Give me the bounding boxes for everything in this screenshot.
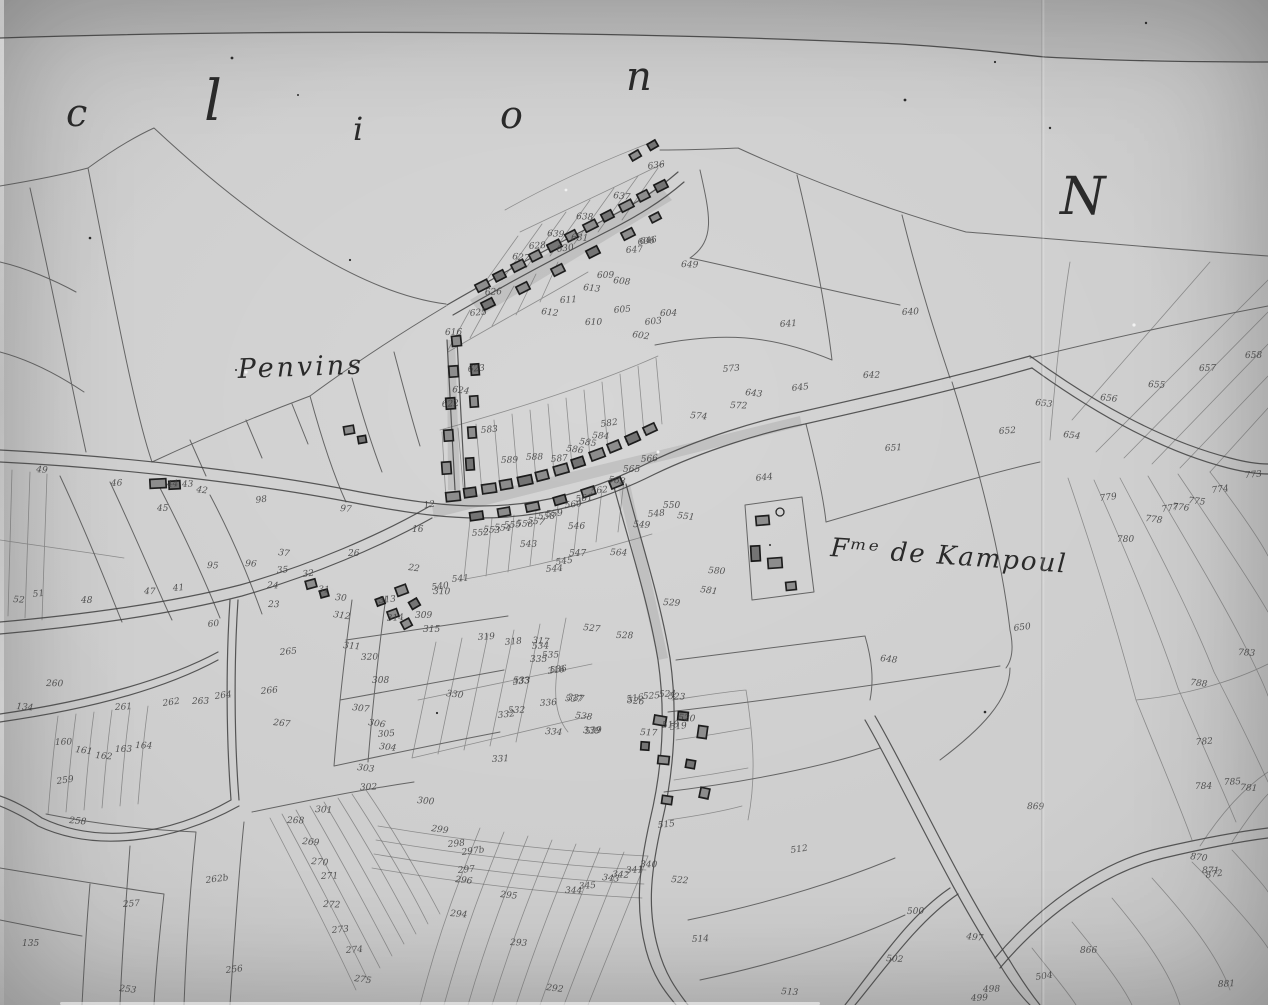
- parcel-number: 657: [1199, 364, 1217, 374]
- parcel-number: 162: [95, 751, 113, 762]
- parcel-number: 517: [640, 728, 658, 739]
- section-letter: c: [66, 91, 87, 135]
- parcel-number: 96: [245, 559, 257, 570]
- parcel-number: 512: [790, 844, 809, 856]
- parcel-number: 314: [387, 613, 405, 624]
- parcel-number: 51: [32, 589, 44, 600]
- parcel-number: 785: [1224, 777, 1242, 788]
- parcel-number: 308: [372, 676, 389, 686]
- parcel-number: 588: [526, 452, 544, 463]
- parcel-number: 582: [600, 418, 619, 430]
- parcel-number: 160: [55, 737, 73, 748]
- parcel-number: 22: [407, 563, 421, 574]
- parcel-number: 560: [564, 499, 582, 511]
- parcel-number: 589: [501, 455, 519, 466]
- parcel-number: 624: [452, 385, 471, 397]
- parcel-number: 628: [529, 241, 547, 252]
- parcel-number: 319: [478, 632, 496, 643]
- parcel-number: 551: [677, 511, 695, 523]
- parcel-number: 305: [378, 729, 396, 740]
- parcel-number: 584: [592, 431, 610, 442]
- parcel-number: 333: [512, 676, 531, 688]
- parcel-number: 550: [663, 501, 680, 511]
- parcel-number: 261: [114, 702, 133, 713]
- parcel-number: 523: [668, 692, 686, 703]
- parcel-number: 616: [445, 328, 463, 338]
- parcel-number: 782: [1195, 737, 1213, 748]
- parcel-number: 497: [965, 932, 984, 944]
- parcel-number: 622: [442, 399, 460, 410]
- parcel-number: 23: [267, 600, 280, 610]
- parcel-number: 266: [259, 686, 278, 698]
- parcel-number: 264: [213, 690, 233, 702]
- parcel-number: 301: [315, 805, 333, 816]
- parcel-number: 307: [352, 703, 371, 715]
- parcel-number: 262b: [204, 873, 229, 886]
- parcel-number: 49: [35, 465, 49, 476]
- parcel-number: 47: [143, 587, 156, 597]
- parcel-number: 499: [970, 993, 989, 1004]
- section-letter: i: [353, 110, 363, 148]
- parcel-number: 306: [368, 718, 387, 730]
- parcel-number: 320: [361, 652, 379, 663]
- parcel-number: 580: [708, 566, 726, 577]
- parcel-number: 639: [547, 229, 565, 240]
- parcel-number: 565: [623, 465, 640, 475]
- parcel-number: 45: [156, 504, 169, 514]
- parcel-number: 304: [379, 742, 397, 754]
- parcel-number: 330: [446, 689, 465, 701]
- parcel-number: 12: [423, 500, 436, 511]
- parcel-number: 652: [999, 426, 1017, 437]
- parcel-number: 653: [1035, 398, 1054, 410]
- parcel-number: 32: [302, 568, 315, 580]
- parcel-number: 642: [863, 371, 881, 381]
- parcel-number: 259: [55, 775, 75, 787]
- parcel-number: 97: [340, 504, 353, 515]
- parcel-number: 623: [467, 364, 485, 375]
- top-margin-shade: [0, 0, 1268, 62]
- parcel-number: 268: [286, 816, 305, 826]
- parcel-number: 656: [1100, 393, 1118, 405]
- cadastral-map-photo: clionN PenvinsFᵐᵉ de Kampoul 63663763863…: [0, 0, 1268, 1005]
- parcel-number: 260: [45, 679, 64, 689]
- parcel-number: 783: [1238, 648, 1256, 659]
- parcel-number: 31: [318, 585, 330, 596]
- parcel-number: 256: [224, 964, 243, 976]
- parcel-number: 552: [472, 528, 490, 539]
- parcel-number: 331: [492, 754, 510, 765]
- parcel-number: 779: [1099, 492, 1118, 504]
- parcel-number: 613: [583, 283, 601, 295]
- parcel-number: 573: [722, 364, 740, 375]
- parcel-number: 316: [547, 665, 566, 677]
- parcel-number: 296: [454, 875, 473, 887]
- parcel-number: 548: [647, 509, 665, 520]
- parcel-number: 544: [546, 564, 564, 575]
- section-letter: n: [626, 54, 652, 100]
- parcel-number: 574: [690, 411, 708, 422]
- parcel-number: 42: [195, 485, 209, 497]
- parcel-number: 258: [68, 816, 87, 828]
- parcel-number: 16: [412, 525, 424, 535]
- north-letter: N: [1058, 167, 1107, 227]
- parcel-number: 52: [13, 595, 25, 606]
- parcel-number: 546: [568, 522, 586, 532]
- parcel-number: 788: [1190, 678, 1208, 690]
- parcel-number: 297: [456, 865, 475, 877]
- parcel-number: 272: [322, 900, 341, 911]
- parcel-number: 640: [902, 307, 920, 318]
- section-letter: o: [500, 93, 523, 137]
- parcel-number: 303: [357, 763, 375, 775]
- parcel-number: 529: [663, 598, 681, 609]
- parcel-number: 564: [610, 548, 628, 559]
- parcel-number: 583: [480, 425, 498, 436]
- parcel-number: 538: [575, 711, 593, 723]
- parcel-number: 265: [278, 647, 297, 659]
- parcel-number: 311: [343, 641, 361, 652]
- parcel-number: 605: [613, 305, 631, 316]
- parcel-number: 581: [700, 585, 718, 597]
- parcel-number: 627: [512, 252, 531, 264]
- parcel-number: 515: [657, 819, 675, 831]
- map-svg: clionN PenvinsFᵐᵉ de Kampoul 63663763863…: [0, 0, 1268, 1005]
- parcel-number: 528: [616, 631, 634, 641]
- parcel-number: 626: [485, 287, 503, 298]
- parcel-number: 300: [417, 796, 435, 807]
- parcel-number: 870: [1190, 852, 1209, 864]
- parcel-number: 645: [791, 382, 809, 394]
- parcel-number: 643: [745, 388, 763, 400]
- parcel-number: 636: [647, 160, 666, 172]
- parcel-number: 345: [579, 881, 597, 892]
- parcel-number: 644: [755, 472, 773, 484]
- parcel-number: 610: [585, 318, 603, 328]
- parcel-number: 275: [353, 974, 373, 986]
- parcel-number: 294: [449, 909, 468, 921]
- parcel-number: 869: [1027, 802, 1045, 812]
- parcel-number: 587: [550, 454, 568, 465]
- parcel-number: 872: [1205, 869, 1224, 881]
- parcel-number: 337: [567, 693, 585, 704]
- parcel-number: 606: [637, 236, 656, 248]
- section-letter: l: [204, 69, 222, 134]
- parcel-numbers-layer: 6366376386396316306286276266256466476496…: [13, 160, 1263, 1004]
- parcel-number: 24: [266, 581, 279, 591]
- parcel-number: 630: [556, 243, 575, 255]
- parcel-number: 500: [907, 907, 925, 917]
- parcel-number: 775: [1188, 496, 1206, 508]
- parcel-number: 297b: [460, 845, 485, 858]
- parcel-number: 612: [541, 307, 560, 319]
- parcel-number: 608: [613, 276, 631, 288]
- parcel-number: 315: [423, 625, 440, 635]
- parcel-number: 44: [165, 479, 179, 490]
- parcel-number: 649: [681, 260, 699, 271]
- place-label: Penvins: [236, 350, 364, 385]
- parcel-number: 253: [118, 984, 137, 996]
- parcel-number: 37: [278, 548, 291, 559]
- parcel-number: 541: [451, 574, 469, 585]
- parcel-number: 658: [1245, 351, 1263, 361]
- parcel-number: 572: [730, 401, 748, 412]
- parcel-number: 339: [583, 726, 601, 737]
- parcel-number: 881: [1218, 979, 1236, 990]
- parcel-number: 611: [560, 295, 578, 306]
- parcel-number: 332: [497, 709, 515, 721]
- parcel-number: 625: [469, 308, 487, 319]
- parcel-number: 263: [191, 697, 210, 707]
- parcel-number: 604: [660, 309, 678, 319]
- parcel-number: 262: [161, 697, 181, 709]
- parcel-number: 774: [1211, 484, 1230, 496]
- parcel-number: 336: [540, 698, 558, 709]
- parcel-number: 26: [347, 549, 360, 559]
- parcel-number: 309: [415, 611, 432, 621]
- place-labels-layer: PenvinsFᵐᵉ de Kampoul: [236, 350, 1068, 580]
- parcel-number: 164: [135, 741, 153, 752]
- parcel-number: 161: [75, 745, 93, 757]
- parcel-number: 655: [1148, 380, 1166, 391]
- parcel-number: 773: [1244, 470, 1262, 481]
- section-letters-layer: clionN: [66, 54, 1107, 227]
- parcel-number: 514: [692, 934, 710, 945]
- parcel-number: 650: [1013, 622, 1032, 634]
- parcel-number: 504: [1035, 971, 1054, 983]
- parcel-number: 293: [509, 938, 528, 949]
- parcel-number: 522: [671, 875, 689, 886]
- parcel-number: 602: [632, 330, 651, 342]
- parcel-number: 637: [613, 191, 631, 203]
- parcel-number: 335: [530, 655, 547, 665]
- parcel-number: 257: [122, 899, 141, 910]
- parcel-number: 48: [80, 596, 93, 606]
- parcel-number: 641: [780, 319, 798, 330]
- parcel-number: 513: [781, 987, 799, 998]
- parcel-number: 549: [633, 520, 651, 531]
- parcel-number: 502: [886, 954, 904, 965]
- parcel-number: 638: [576, 212, 594, 223]
- parcel-number: 313: [378, 595, 396, 606]
- parcel-number: 60: [207, 619, 220, 630]
- place-label: Fᵐᵉ de Kampoul: [829, 533, 1069, 580]
- parcel-number: 778: [1145, 514, 1164, 526]
- parcel-number: 651: [885, 443, 903, 454]
- parcel-number: 318: [504, 637, 522, 648]
- farm-well-circle: [776, 508, 784, 516]
- parcel-number: 562: [590, 485, 608, 497]
- parcel-number: 46: [110, 479, 123, 489]
- parcel-number: 270: [310, 857, 329, 869]
- parcel-number: 312: [333, 610, 352, 622]
- parcel-number: 134: [16, 702, 34, 713]
- roads-layer: [0, 172, 1268, 1005]
- parcel-number: 648: [880, 654, 898, 666]
- parcel-number: 41: [171, 583, 184, 594]
- parcel-number: 654: [1063, 430, 1082, 442]
- parcel-number: 43: [181, 480, 194, 490]
- parcel-number: 780: [1117, 535, 1135, 545]
- parcel-number: 543: [520, 540, 538, 550]
- parcel-number: 784: [1195, 782, 1213, 792]
- parcel-number: 271: [320, 871, 339, 882]
- parcel-number: 317: [532, 636, 550, 647]
- parcel-number: 781: [1240, 783, 1258, 794]
- parcel-number: 163: [115, 745, 133, 755]
- parcel-number: 267: [272, 718, 291, 730]
- parcel-number: 566: [641, 454, 659, 465]
- parcel-number: 609: [597, 271, 615, 281]
- parcel-number: 866: [1080, 946, 1097, 956]
- parcel-number: 295: [499, 890, 518, 902]
- parcel-number: 310: [433, 587, 451, 597]
- parcel-number: 518: [662, 720, 680, 731]
- parcel-number: 269: [301, 837, 320, 849]
- parcel-number: 274: [345, 945, 364, 956]
- parcel-number: 527: [583, 623, 601, 635]
- parcel-number: 302: [360, 782, 378, 793]
- parcel-number: 98: [255, 495, 268, 506]
- parcel-number: 30: [335, 593, 348, 604]
- parcel-number: 631: [571, 233, 589, 244]
- parcel-number: 343: [602, 873, 620, 885]
- parcel-number: 35: [277, 565, 289, 576]
- parcel-number: 135: [22, 939, 39, 949]
- parcel-number: 334: [545, 727, 563, 738]
- parcel-number: 292: [545, 983, 565, 995]
- parcel-number: 95: [207, 561, 219, 571]
- parcel-number: 273: [330, 925, 349, 937]
